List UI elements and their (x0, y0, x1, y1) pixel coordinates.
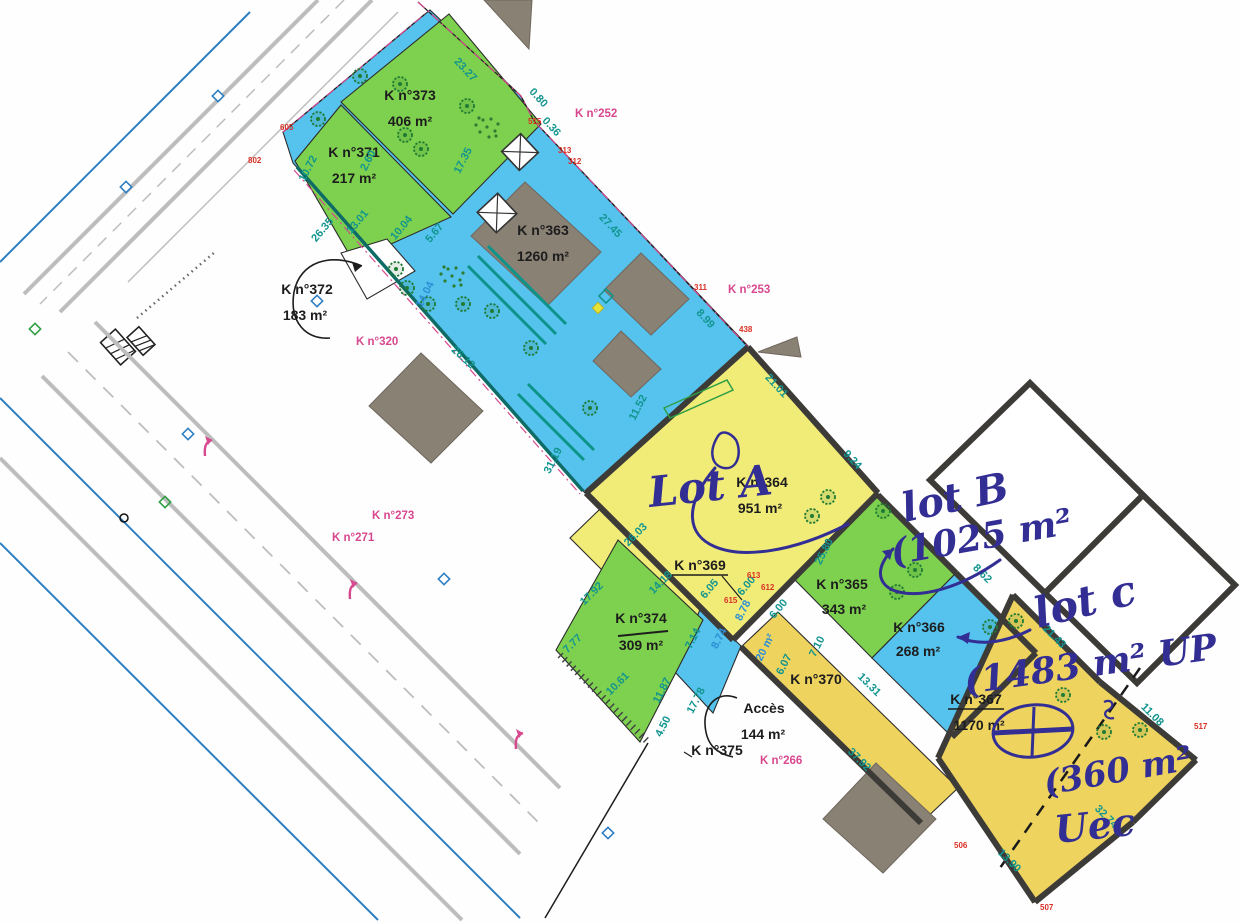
tree-symbol-center (403, 133, 407, 137)
shrub-dot (452, 284, 455, 287)
shrub-dot (485, 125, 488, 128)
utility-square-symbol (120, 181, 131, 192)
parcel-area-k365: 343 m² (822, 601, 867, 617)
shrub-dot (461, 271, 464, 274)
parcel-area-k371: 217 m² (332, 170, 377, 186)
shrub-dot (474, 123, 477, 126)
shrub-dot (443, 279, 446, 282)
map-line (0, 458, 462, 920)
shrub-dot (481, 118, 484, 121)
survey-point-number: 507 (1040, 903, 1054, 912)
map-line (0, 12, 250, 262)
survey-point-number: 311 (694, 283, 707, 292)
neighbor-parcel-ref: K n°273 (372, 510, 414, 522)
survey-point-number: 612 (761, 583, 775, 592)
parcel-label-k375: K n°375 (691, 742, 743, 758)
survey-map-svg: K n°373406 m²K n°371217 m²K n°3631260 m²… (0, 0, 1240, 923)
parcel-area-k366: 268 m² (896, 643, 941, 659)
map-line (42, 376, 520, 854)
parcel-area-acces: 144 m² (741, 726, 786, 742)
dimension-label: 4.50 (653, 714, 673, 739)
parcel-label-k369: K n°369 (674, 557, 726, 573)
survey-point-number: 313 (558, 146, 572, 155)
tree-symbol-center (461, 302, 465, 306)
tree-symbol-center (1138, 728, 1142, 732)
parcel-label-acces: Accès (743, 700, 784, 716)
utility-square-symbol (438, 573, 449, 584)
survey-point-number: 506 (954, 841, 968, 850)
parcel-area-k373: 406 m² (388, 113, 433, 129)
map-line (24, 0, 318, 294)
parcel-label-k366: K n°366 (893, 619, 945, 635)
survey-point-number: 515 (528, 117, 542, 126)
tree-symbol-center (881, 509, 885, 513)
utility-square-symbol (182, 428, 193, 439)
tree-symbol-center (588, 406, 592, 410)
shrub-dot (442, 265, 445, 268)
neighbor-parcel-ref: K n°320 (356, 336, 398, 348)
handwritten-lot-c-division-name: Uec (1052, 799, 1137, 852)
shrub-dot (459, 283, 462, 286)
tree-symbol-center (988, 625, 992, 629)
building (484, 0, 532, 49)
cadastral-plan-document: K n°373406 m²K n°371217 m²K n°3631260 m²… (0, 0, 1240, 923)
parcel-label-k374: K n°374 (615, 610, 667, 626)
shrub-dot (450, 274, 453, 277)
ink-circled-plus-vbar (1032, 707, 1034, 757)
tree-symbol-center (529, 346, 533, 350)
parcel-area-k363: 1260 m² (517, 248, 569, 264)
parcel-label-k373: K n°373 (384, 87, 436, 103)
survey-point-number: 615 (724, 596, 738, 605)
tree-symbol-center (465, 104, 469, 108)
utility-square-symbol (602, 827, 613, 838)
building (369, 353, 483, 463)
neighbor-parcel-ref: K n°253 (728, 284, 770, 296)
shrub-dot (477, 116, 480, 119)
tree-symbol-center (316, 117, 320, 121)
shrub-dot (489, 117, 492, 120)
tree-symbol-center (405, 286, 409, 290)
map-line (95, 322, 560, 788)
tree-symbol-center (1061, 693, 1065, 697)
parcel-label-k363: K n°363 (517, 222, 569, 238)
shrub-dot (458, 278, 461, 281)
survey-point-number: 438 (739, 325, 753, 334)
shrub-dot (439, 272, 442, 275)
survey-point-number: 605 (280, 123, 294, 132)
tree-symbol-center (490, 309, 494, 313)
map-line (0, 398, 520, 918)
grey-wedge (758, 337, 801, 357)
map-line (0, 543, 378, 920)
survey-point-number: 517 (1194, 722, 1208, 731)
utility-square-symbol (311, 295, 322, 306)
parcel-area-k374: 309 m² (619, 637, 664, 653)
shrub-dot (493, 129, 496, 132)
dimension-label: 0.80 (527, 86, 550, 110)
parcel-label-k372: K n°372 (281, 281, 333, 297)
utility-square-symbol (212, 90, 223, 101)
survey-point-number: 312 (568, 157, 582, 166)
survey-diamond-symbol (29, 323, 40, 334)
shrub-dot (478, 130, 481, 133)
shrub-dot (494, 134, 497, 137)
parcel-label-k370: K n°370 (790, 671, 842, 687)
tree-symbol-center (398, 82, 402, 86)
parcel-label-k365: K n°365 (816, 576, 868, 592)
tree-symbol-center (358, 74, 362, 78)
survey-point-number: 802 (248, 156, 262, 165)
tree-symbol-center (810, 514, 814, 518)
neighbor-parcel-ref: K n°266 (760, 755, 802, 767)
tree-symbol-center (419, 147, 423, 151)
neighbor-parcel-ref: K n°252 (575, 108, 617, 120)
tree-symbol-center (1014, 619, 1018, 623)
parcel-area-k372: 183 m² (283, 307, 328, 323)
shrub-dot (454, 266, 457, 269)
shrub-dot (487, 135, 490, 138)
shrub-dot (446, 267, 449, 270)
tree-symbol-center (394, 267, 398, 271)
neighbor-parcel-ref: K n°271 (332, 532, 375, 544)
tree-symbol-center (1102, 730, 1106, 734)
survey-point-number: 613 (747, 571, 761, 580)
dimension-label: 7.10 (807, 634, 827, 659)
shrub-dot (496, 122, 499, 125)
tree-symbol-center (826, 495, 830, 499)
map-line (545, 743, 648, 918)
